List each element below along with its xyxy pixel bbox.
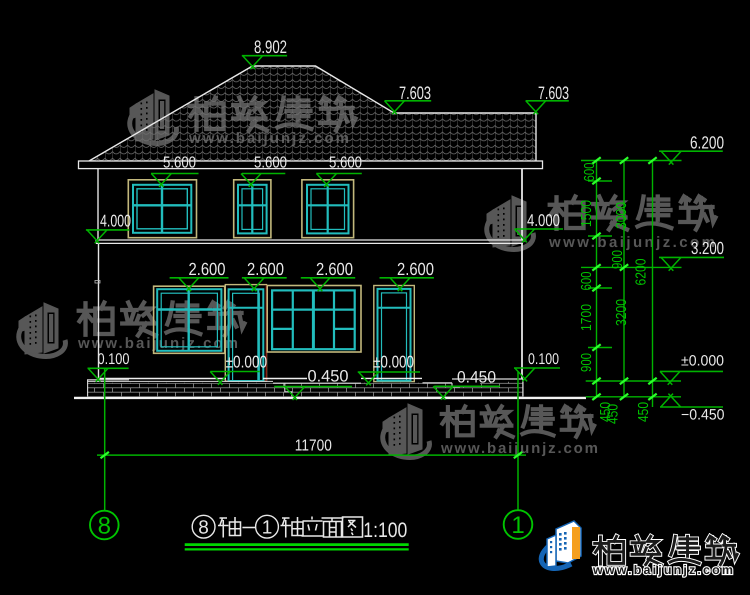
svg-text:2.600: 2.600 (316, 259, 353, 279)
svg-text:±0.000: ±0.000 (226, 353, 268, 372)
svg-text:±0.000: ±0.000 (681, 353, 724, 370)
svg-text:900: 900 (610, 250, 626, 269)
svg-text:5.600: 5.600 (254, 155, 287, 172)
svg-text:3.200: 3.200 (691, 238, 724, 258)
svg-text:6.200: 6.200 (690, 133, 724, 153)
svg-text:1:100: 1:100 (363, 519, 407, 542)
svg-text:−0.450: −0.450 (681, 407, 725, 424)
svg-text:600: 600 (579, 272, 595, 291)
svg-text:4.000: 4.000 (100, 212, 131, 231)
svg-text:0.100: 0.100 (98, 351, 130, 368)
svg-text:7.603: 7.603 (399, 83, 431, 103)
svg-text:0.450: 0.450 (457, 369, 496, 387)
svg-text:7.603: 7.603 (538, 83, 569, 103)
svg-text:3200: 3200 (614, 299, 630, 326)
svg-text:11700: 11700 (295, 438, 332, 455)
svg-text:8: 8 (198, 518, 209, 539)
svg-text:0.450: 0.450 (308, 368, 349, 386)
svg-text:600: 600 (582, 163, 598, 182)
svg-text:1: 1 (511, 512, 524, 539)
svg-text:900: 900 (579, 353, 595, 372)
svg-text:2.600: 2.600 (247, 259, 284, 279)
svg-text:1: 1 (262, 518, 273, 539)
svg-text:5.600: 5.600 (329, 155, 362, 172)
svg-text:±0.000: ±0.000 (373, 353, 414, 372)
svg-text:1500: 1500 (579, 200, 595, 227)
svg-text:5.600: 5.600 (163, 155, 196, 172)
svg-text:6200: 6200 (634, 259, 650, 286)
svg-text:0.100: 0.100 (528, 351, 559, 368)
svg-text:1700: 1700 (579, 304, 595, 331)
svg-text:3000: 3000 (614, 202, 630, 229)
svg-text:8: 8 (98, 513, 111, 540)
svg-text:8.902: 8.902 (254, 37, 287, 57)
svg-text:4.000: 4.000 (527, 211, 560, 230)
svg-text:2.600: 2.600 (189, 259, 226, 279)
svg-text:2.600: 2.600 (397, 259, 434, 279)
svg-text:450: 450 (636, 402, 652, 422)
svg-text:450: 450 (606, 404, 622, 424)
